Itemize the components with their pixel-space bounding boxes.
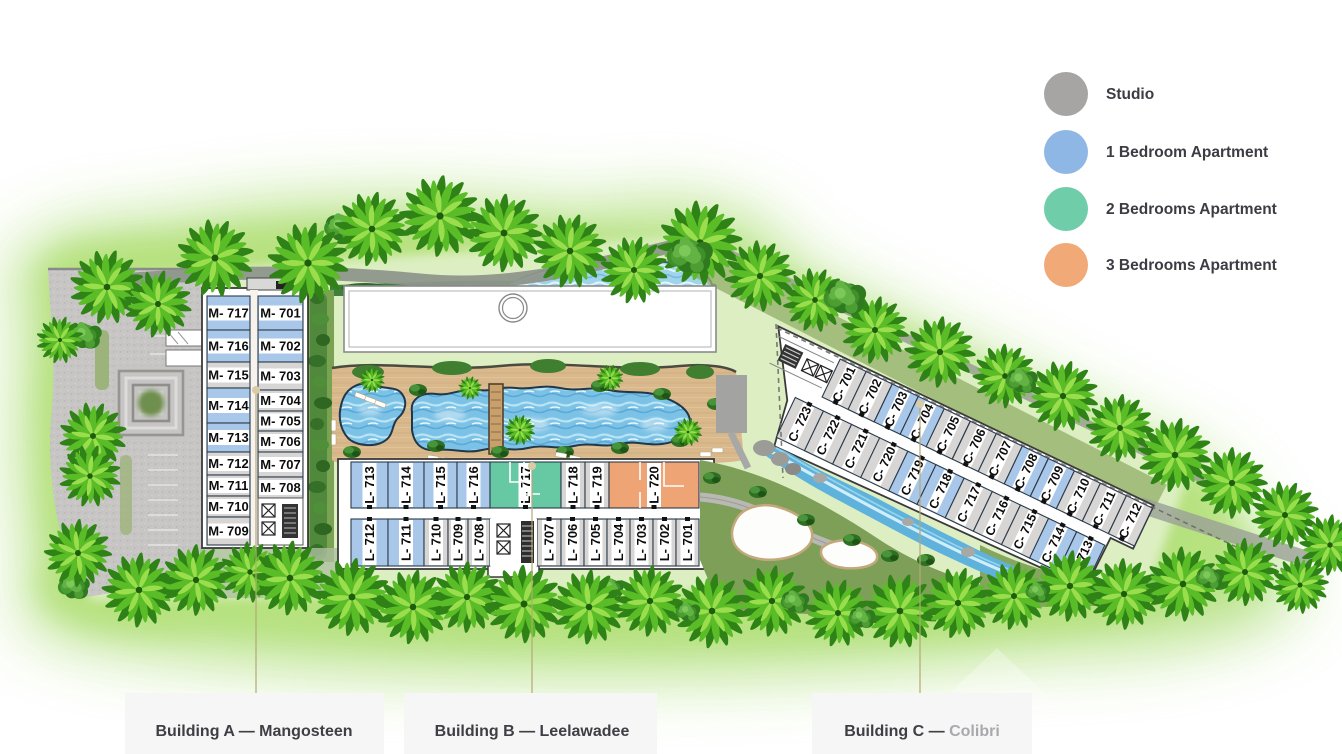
svg-text:L- 711: L- 711 <box>399 524 414 561</box>
svg-text:L- 718: L- 718 <box>566 466 581 504</box>
svg-text:M- 710: M- 710 <box>208 499 248 514</box>
svg-text:M- 717: M- 717 <box>208 306 248 321</box>
svg-text:M- 711: M- 711 <box>209 478 249 493</box>
svg-text:L- 712: L- 712 <box>362 524 377 562</box>
svg-text:L- 702: L- 702 <box>657 524 672 562</box>
svg-text:M- 713: M- 713 <box>208 430 248 445</box>
svg-text:L- 706: L- 706 <box>565 524 580 562</box>
svg-text:L- 715: L- 715 <box>433 466 448 504</box>
svg-text:1 Bedroom Apartment: 1 Bedroom Apartment <box>1106 144 1268 161</box>
svg-text:M- 712: M- 712 <box>208 456 248 471</box>
svg-text:M- 702: M- 702 <box>260 339 300 354</box>
svg-text:M- 701: M- 701 <box>260 306 300 321</box>
svg-text:L- 708: L- 708 <box>472 524 487 562</box>
svg-text:2 Bedrooms Apartment: 2 Bedrooms Apartment <box>1106 201 1277 218</box>
svg-text:L- 719: L- 719 <box>590 466 605 504</box>
svg-text:L- 720: L- 720 <box>647 466 662 504</box>
svg-text:L- 703: L- 703 <box>634 524 649 562</box>
svg-text:L- 716: L- 716 <box>466 466 481 504</box>
svg-text:M- 715: M- 715 <box>208 368 248 383</box>
svg-text:M- 716: M- 716 <box>208 339 248 354</box>
svg-text:L- 710: L- 710 <box>429 524 444 562</box>
svg-text:L- 704: L- 704 <box>611 523 626 561</box>
svg-text:M- 708: M- 708 <box>260 480 300 495</box>
svg-text:L- 714: L- 714 <box>399 465 414 503</box>
svg-text:M- 705: M- 705 <box>260 414 300 429</box>
svg-text:L- 701: L- 701 <box>680 524 695 562</box>
svg-text:L- 717: L- 717 <box>518 466 533 504</box>
svg-text:M- 707: M- 707 <box>260 457 300 472</box>
svg-text:L- 705: L- 705 <box>588 524 603 562</box>
svg-text:M- 706: M- 706 <box>260 434 300 449</box>
svg-text:Building B — Leelawadee: Building B — Leelawadee <box>435 723 630 740</box>
svg-text:Building A — Mangosteen: Building A — Mangosteen <box>155 723 352 740</box>
svg-text:M- 703: M- 703 <box>260 369 300 384</box>
svg-text:M- 704: M- 704 <box>260 393 301 408</box>
svg-text:Studio: Studio <box>1106 86 1154 103</box>
svg-text:L- 707: L- 707 <box>542 524 557 562</box>
svg-text:L- 713: L- 713 <box>362 466 377 504</box>
svg-text:L- 709: L- 709 <box>451 524 466 562</box>
svg-text:Building C — Colibri: Building C — Colibri <box>844 723 1000 740</box>
svg-text:M- 709: M- 709 <box>208 524 248 539</box>
svg-text:M- 714: M- 714 <box>208 398 249 413</box>
svg-text:3 Bedrooms Apartment: 3 Bedrooms Apartment <box>1106 257 1277 274</box>
